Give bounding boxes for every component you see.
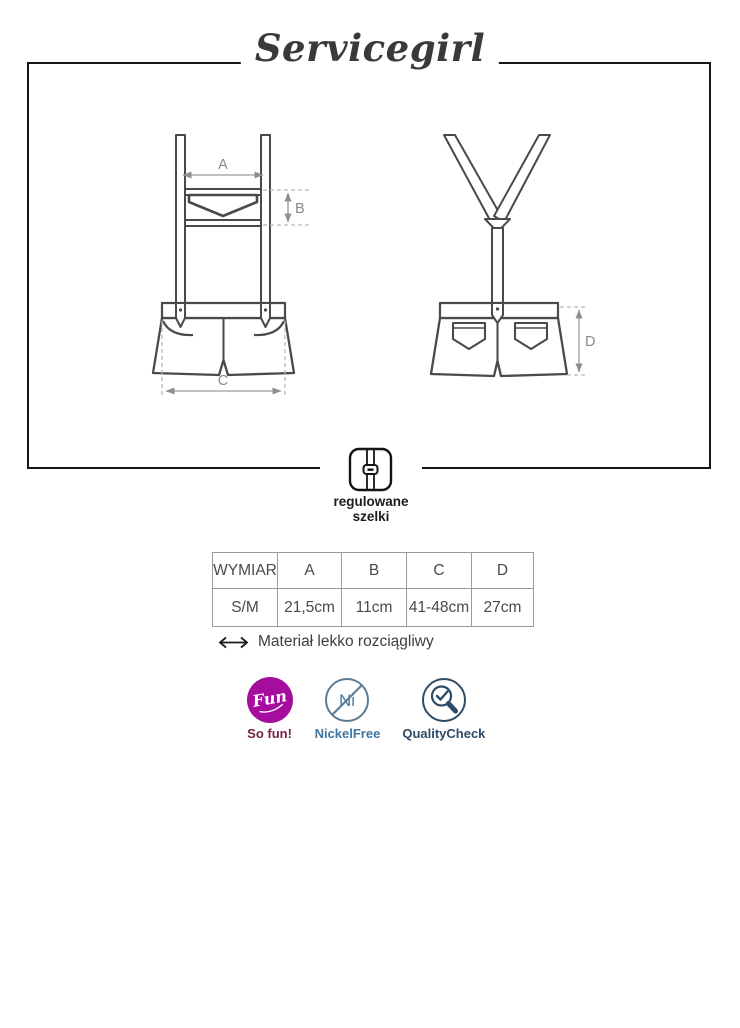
size-table-header-cell: D (472, 553, 534, 589)
size-table-header-row: WYMIAR A B C D (213, 553, 534, 589)
measurement-cell-d: 27cm (472, 589, 534, 627)
dimension-label-a: A (218, 157, 228, 173)
size-table-data-row: S/M 21,5cm 11cm 41-48cm 27cm (213, 589, 534, 627)
size-guide-page: Servicegirl (0, 0, 740, 1028)
adjustable-suspenders-icon (348, 447, 393, 492)
badge-label-so-fun: So fun! (247, 726, 292, 741)
garment-diagram: A B C (27, 62, 712, 470)
dimension-label-d: D (585, 334, 595, 350)
badge-label-qualitycheck: QualityCheck (402, 726, 485, 741)
size-table-header-cell: B (342, 553, 407, 589)
badge-quality-check: QualityCheck (402, 677, 485, 741)
badges-row: Fun So fun! Ni NickelFree QualityCheck (0, 677, 732, 741)
brand-logo: Servicegirl (241, 26, 499, 70)
nickel-free-icon: Ni (324, 677, 370, 723)
back-view-drawing (431, 135, 567, 376)
feature-label-line2: szelki (301, 509, 441, 524)
material-note-text: Materiał lekko rozciągliwy (258, 633, 434, 651)
size-table-header-cell: C (407, 553, 472, 589)
dimension-label-c: C (218, 373, 228, 389)
fun-icon: Fun (247, 677, 293, 723)
nickel-free-icon-text: Ni (339, 691, 355, 710)
measurement-cell-a: 21,5cm (278, 589, 342, 627)
quality-check-icon (421, 677, 467, 723)
size-table-header-cell: A (278, 553, 342, 589)
measurement-cell-c: 41-48cm (407, 589, 472, 627)
measurement-cell-b: 11cm (342, 589, 407, 627)
material-note: Materiał lekko rozciągliwy (218, 632, 434, 652)
size-table: WYMIAR A B C D S/M 21,5cm 11cm 41-48cm 2… (212, 552, 534, 627)
feature-label-line1: regulowane (301, 494, 441, 509)
badge-label-nickelfree: NickelFree (315, 726, 381, 741)
badge-fun: Fun So fun! (247, 677, 293, 741)
size-table-header-cell: WYMIAR (213, 553, 278, 589)
badge-nickel-free: Ni NickelFree (315, 677, 381, 741)
dimension-label-b: B (295, 201, 305, 217)
size-cell: S/M (213, 589, 278, 627)
feature-label: regulowane szelki (301, 494, 441, 524)
double-arrow-icon (218, 636, 249, 649)
